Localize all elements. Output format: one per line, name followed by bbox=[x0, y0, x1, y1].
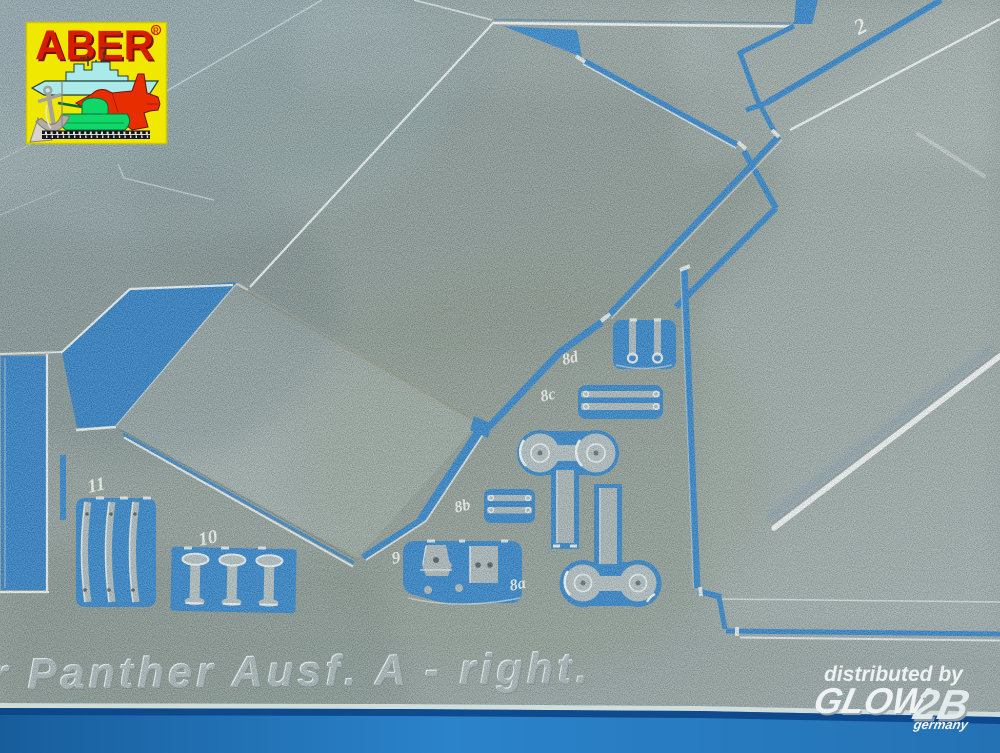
svg-text:R: R bbox=[153, 27, 159, 36]
svg-text:germany: germany bbox=[911, 717, 969, 732]
svg-text:ABER: ABER bbox=[35, 22, 154, 69]
